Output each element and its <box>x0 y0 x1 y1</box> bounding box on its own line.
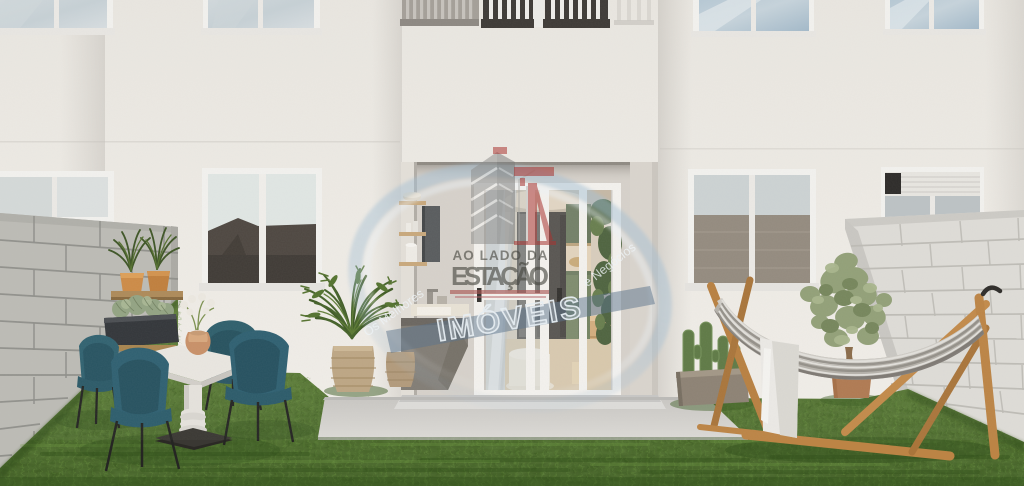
svg-text:ESTAÇÃO: ESTAÇÃO <box>451 261 549 291</box>
